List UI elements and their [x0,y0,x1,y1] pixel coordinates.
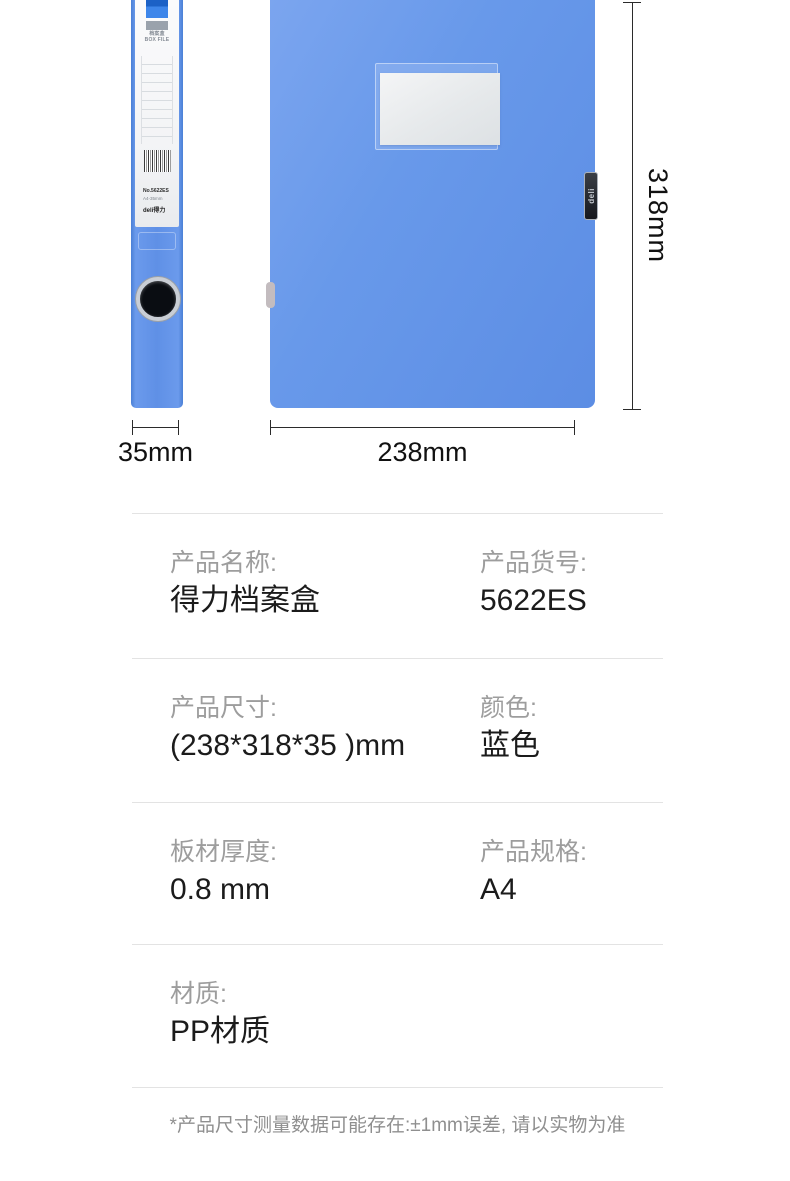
spec-value: 得力档案盒 [170,580,663,622]
spine-sku-text: No.5622ES [143,188,169,194]
spine-molded-notch [138,232,176,250]
spine-size-text: A4-35mm [143,196,163,201]
spec-cell-product-name: 产品名称: 得力档案盒 [170,547,663,622]
spec-label: 材质: [170,978,663,1011]
barcode [144,150,171,172]
clip-brand-text: deli [587,188,596,204]
spine-title-en: BOX FILE [135,37,179,43]
brand-clip: deli [584,172,598,220]
spec-cell-product-sku: 产品货号: 5622ES [480,547,587,622]
front-photo: deli [270,0,595,408]
spec-label: 产品名称: [170,547,663,580]
spine-ruled-lines [141,56,173,144]
spec-divider [132,1087,663,1088]
label-card [380,73,500,145]
spec-divider [132,658,663,659]
spec-label: 板材厚度: [170,836,663,869]
spec-divider [132,513,663,514]
spec-row-thickness-format: 板材厚度: 0.8 mm 产品规格: A4 [170,836,663,911]
spec-cell-material: 材质: PP材质 [170,978,663,1053]
spine-label-strip: 档案盒 BOX FILE No.5622ES A4-35mm deli得力 [135,0,179,227]
finger-hole [136,277,180,321]
spec-row-size-color: 产品尺寸: (238*318*35 )mm 颜色: 蓝色 [170,692,663,767]
spec-value: A4 [480,869,587,911]
spec-cell-product-size: 产品尺寸: (238*318*35 )mm [170,692,663,767]
height-dimension-label: 318mm [642,168,673,263]
depth-dimension-label: 35mm [108,437,203,468]
spec-label: 产品规格: [480,836,587,869]
product-detail-page: 档案盒 BOX FILE No.5622ES A4-35mm deli得力 de… [0,0,790,1181]
spec-value: 0.8 mm [170,869,663,911]
depth-dimension-tick-left [132,420,133,435]
width-dimension-line [270,427,575,428]
spec-label: 产品尺寸: [170,692,663,725]
spec-divider [132,802,663,803]
width-dimension-tick-left [270,420,271,435]
depth-dimension-tick-right [178,420,179,435]
spec-label: 产品货号: [480,547,587,580]
spine-brand-logo: deli得力 [143,205,165,214]
spec-value: PP材质 [170,1011,663,1053]
depth-dimension-line [132,427,179,428]
spec-cell-product-format: 产品规格: A4 [480,836,587,911]
spine-label-title: 档案盒 BOX FILE [135,31,179,43]
measurement-disclaimer: *产品尺寸测量数据可能存在:±1mm误差, 请以实物为准 [132,1110,663,1137]
spine-label-gray-block [146,21,168,30]
height-dimension-line [632,2,633,410]
height-dimension-tick-top [623,2,641,3]
width-dimension-tick-right [574,420,575,435]
spine-label-blue-block [146,0,168,18]
width-dimension-label: 238mm [270,437,575,468]
spec-divider [132,944,663,945]
height-dimension-tick-bottom [623,409,641,410]
spec-value: (238*318*35 )mm [170,725,663,767]
spec-cell-board-thickness: 板材厚度: 0.8 mm [170,836,663,911]
spec-value: 5622ES [480,580,587,622]
spec-row-name-sku: 产品名称: 得力档案盒 产品货号: 5622ES [170,547,663,622]
spine-photo: 档案盒 BOX FILE No.5622ES A4-35mm deli得力 [131,0,183,408]
spec-label: 颜色: [480,692,540,725]
side-hinge [266,282,275,308]
spec-cell-color: 颜色: 蓝色 [480,692,540,767]
spec-value: 蓝色 [480,725,540,767]
spec-row-material: 材质: PP材质 [170,978,663,1053]
